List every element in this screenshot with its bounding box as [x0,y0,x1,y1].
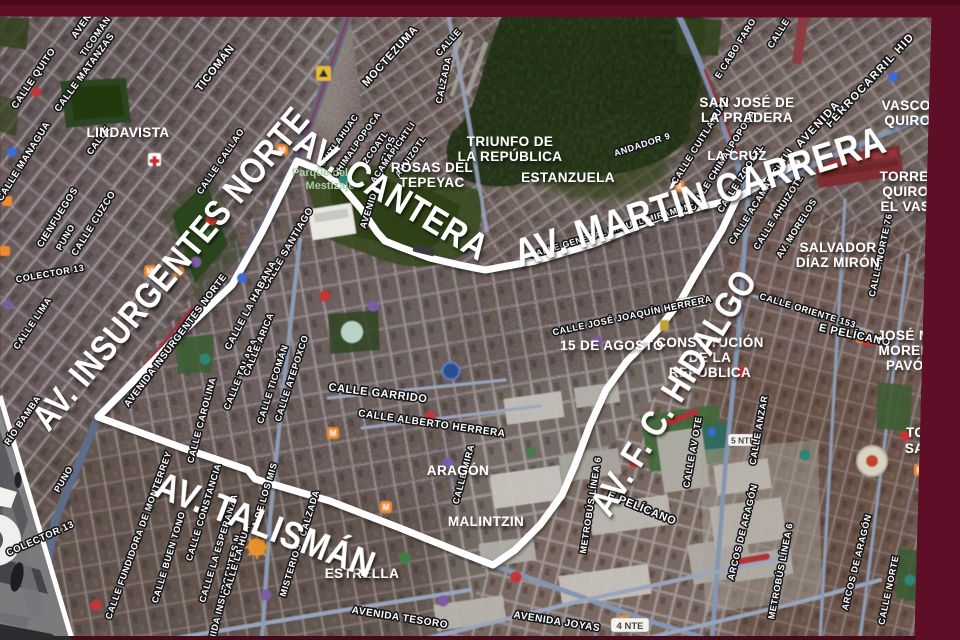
svg-text:LINDAVISTA: LINDAVISTA [87,125,170,140]
svg-text:ARAGÓN: ARAGÓN [427,463,489,478]
svg-text:SALVADOR: SALVADOR [800,240,877,255]
svg-text:M: M [330,429,337,438]
svg-text:SAN JOSÉ DE: SAN JOSÉ DE [699,95,794,110]
svg-text:4 NTE: 4 NTE [617,621,644,632]
svg-text:LA REPÚBLICA: LA REPÚBLICA [458,149,563,164]
svg-text:15 DE AGOSTO: 15 DE AGOSTO [560,338,664,353]
svg-text:LA PRADERA: LA PRADERA [701,110,793,125]
svg-text:DÍAZ MIRÓN: DÍAZ MIRÓN [796,255,880,270]
svg-text:M: M [383,503,390,512]
svg-text:ESTANZUELA: ESTANZUELA [521,170,615,185]
svg-text:MALINTZIN: MALINTZIN [448,514,524,529]
svg-text:TRIUNFO DE: TRIUNFO DE [467,134,554,149]
